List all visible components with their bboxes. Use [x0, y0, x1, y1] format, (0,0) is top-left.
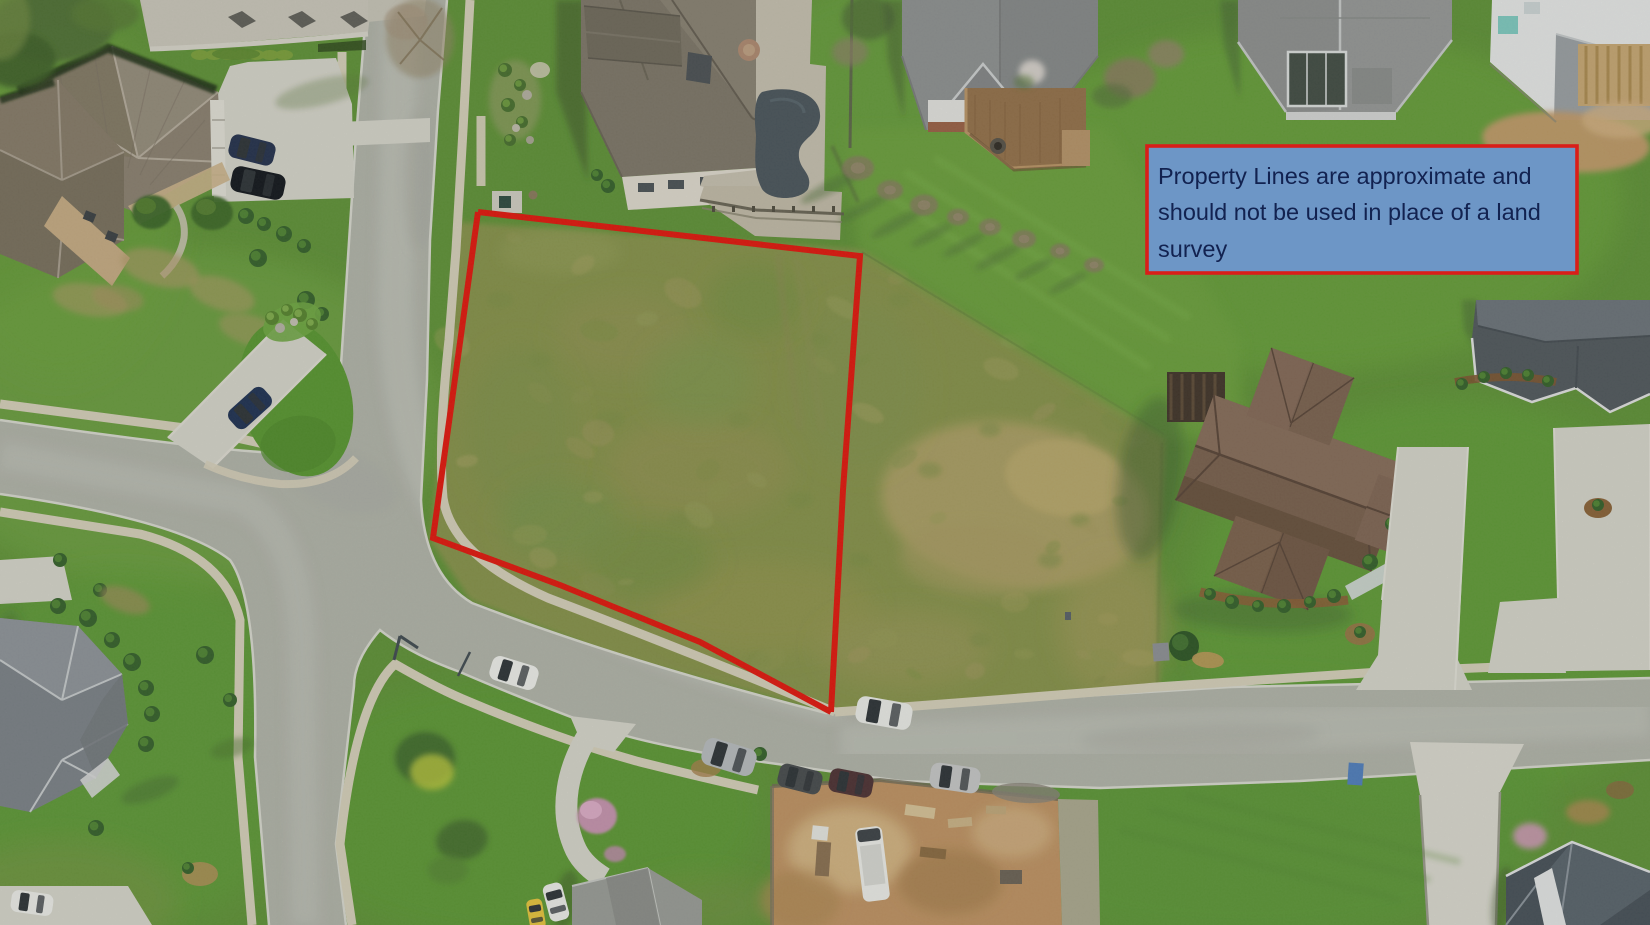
svg-text:Property Lines are approximate: Property Lines are approximate and — [1158, 163, 1532, 189]
svg-text:should not be used in place of: should not be used in place of a land — [1158, 199, 1541, 225]
svg-text:survey: survey — [1158, 236, 1227, 262]
